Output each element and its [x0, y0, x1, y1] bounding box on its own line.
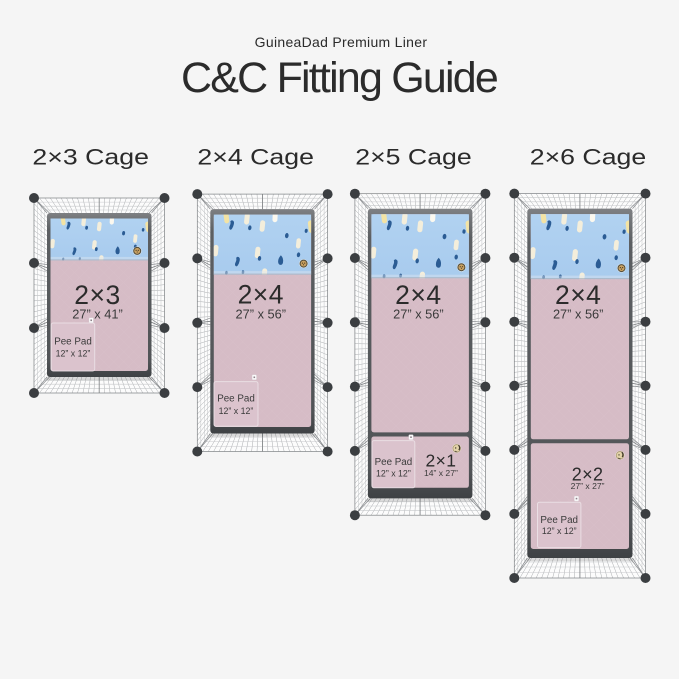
- svg-text:27” x 56”: 27” x 56”: [393, 306, 444, 321]
- svg-text:12” x 12”: 12” x 12”: [219, 406, 254, 416]
- svg-text:Pee Pad: Pee Pad: [217, 393, 255, 404]
- svg-text:2×4 Cage: 2×4 Cage: [197, 145, 314, 170]
- svg-text:12” x 12”: 12” x 12”: [56, 348, 91, 358]
- svg-text:12” x 12”: 12” x 12”: [542, 526, 577, 536]
- svg-text:2×3 Cage: 2×3 Cage: [32, 145, 149, 170]
- svg-text:12” x 12”: 12” x 12”: [376, 468, 411, 478]
- svg-text:Pee Pad: Pee Pad: [54, 337, 92, 348]
- svg-text:2×5 Cage: 2×5 Cage: [355, 145, 472, 170]
- svg-text:14” x 27”: 14” x 27”: [424, 468, 458, 478]
- svg-text:GuineaDad Premium Liner: GuineaDad Premium Liner: [255, 34, 428, 50]
- svg-text:27” x 56”: 27” x 56”: [236, 306, 287, 321]
- svg-text:2×3: 2×3: [74, 280, 120, 310]
- svg-text:27” x 56”: 27” x 56”: [553, 306, 604, 321]
- svg-text:27” x 27”: 27” x 27”: [571, 481, 605, 491]
- svg-text:Pee Pad: Pee Pad: [540, 515, 578, 526]
- svg-text:C&C Fitting Guide: C&C Fitting Guide: [181, 54, 497, 102]
- svg-text:2×6 Cage: 2×6 Cage: [530, 145, 647, 170]
- svg-text:27” x 41”: 27” x 41”: [72, 306, 123, 321]
- svg-text:Pee Pad: Pee Pad: [375, 457, 413, 468]
- svg-text:2×4: 2×4: [238, 280, 284, 310]
